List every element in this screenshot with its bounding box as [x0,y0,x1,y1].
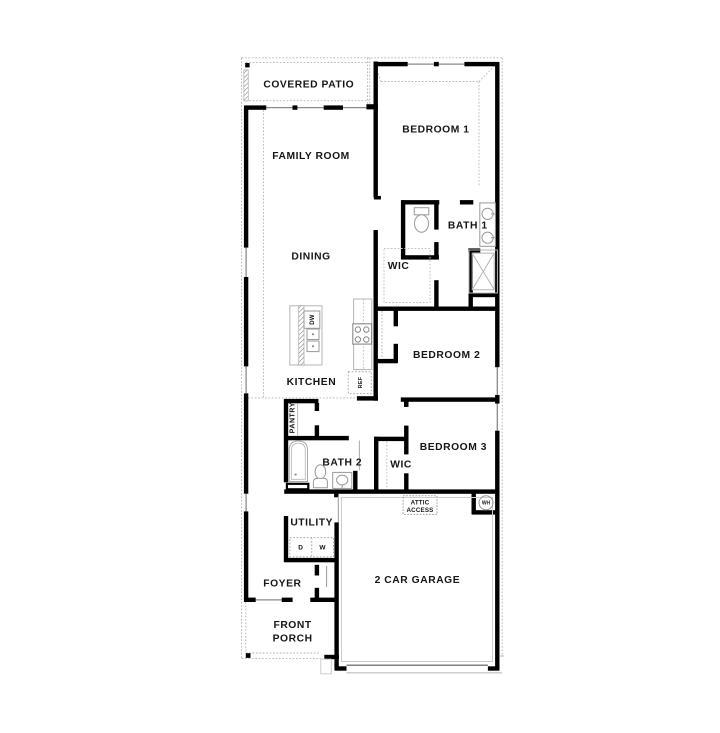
svg-text:WIC: WIC [388,261,410,272]
svg-text:FAMILY ROOM: FAMILY ROOM [272,151,350,162]
svg-text:ACCESS: ACCESS [407,507,434,514]
svg-text:KITCHEN: KITCHEN [287,377,337,388]
svg-text:BATH 1: BATH 1 [448,220,488,231]
svg-text:PANTRY: PANTRY [290,402,297,433]
svg-text:FRONT: FRONT [273,620,311,631]
svg-text:BEDROOM 3: BEDROOM 3 [420,442,487,453]
svg-text:WIC: WIC [390,460,412,471]
svg-text:DW: DW [310,314,316,325]
svg-text:COVERED PATIO: COVERED PATIO [263,79,354,90]
svg-text:ATTIC: ATTIC [411,500,430,507]
svg-text:2 CAR GARAGE: 2 CAR GARAGE [375,575,461,586]
svg-text:D: D [298,545,303,552]
svg-text:FOYER: FOYER [263,579,301,590]
svg-text:BEDROOM 2: BEDROOM 2 [413,350,480,361]
svg-text:W: W [319,545,326,552]
svg-text:PORCH: PORCH [273,633,313,644]
svg-text:WH: WH [482,501,491,507]
svg-text:BEDROOM 1: BEDROOM 1 [402,125,469,136]
svg-text:UTILITY: UTILITY [290,518,333,529]
svg-text:BATH 2: BATH 2 [322,457,362,468]
svg-text:DINING: DINING [291,252,330,263]
svg-text:REF: REF [358,376,364,388]
